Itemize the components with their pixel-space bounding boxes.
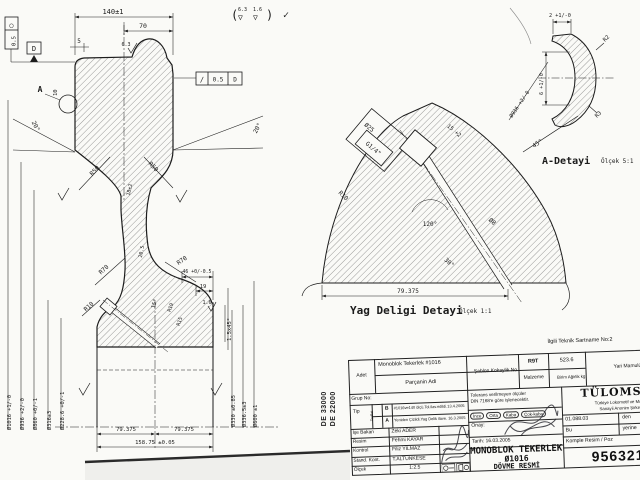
- side-code-1: DE 33000: [321, 391, 330, 426]
- a-scale: Ölçek 5:1: [601, 158, 634, 165]
- oil-angle120: 120°: [423, 221, 437, 228]
- a-dim-2: 2 +1/-0: [549, 13, 571, 19]
- role-1: İşe Bakan: [352, 430, 374, 436]
- malzeme-value: R9T: [518, 353, 549, 370]
- class-ince: İnce: [470, 412, 485, 420]
- a-caption: A-Detayi: [542, 155, 590, 167]
- wheel-cross-section: [55, 22, 278, 448]
- dim-70: 70: [139, 22, 147, 30]
- angle-left: 20°: [30, 120, 41, 133]
- tadilat-label: Tadilat: [370, 411, 374, 422]
- frame-symbol: ∕: [200, 76, 204, 84]
- oil-scale: Ölçek 1:1: [459, 308, 492, 315]
- tip-label: Tip: [353, 410, 360, 416]
- dia-600: Ø600 ±1: [252, 405, 259, 427]
- note-f2-flag-icon: ▽: [253, 13, 258, 22]
- approval-scribble: [500, 403, 563, 443]
- sheet-edge: [85, 451, 350, 480]
- detail-a-letter: A: [38, 85, 43, 94]
- projection-symbol-icon: [442, 463, 470, 473]
- chamfer: 1.5x45°: [227, 318, 233, 341]
- a-dim-6: 6 +1/-0: [539, 73, 545, 95]
- onay-label: Onay:: [471, 423, 485, 429]
- angle-right: 20°: [252, 122, 263, 135]
- wheel-section-path: [75, 39, 213, 347]
- role-2: Resim: [353, 439, 367, 445]
- title-block: İlgili Teknik Sartname No:2 Adet Monoblo…: [348, 348, 640, 476]
- name-1: Zeki ADER: [391, 429, 416, 436]
- detail-a-callout: A: [38, 85, 77, 113]
- signature-scribble: [436, 422, 472, 469]
- rev-a-letter: A: [382, 415, 392, 427]
- note-f1-flag-icon: ▽: [238, 13, 243, 22]
- finish-top: 6.3: [121, 42, 130, 48]
- dim-10: 10: [53, 89, 59, 96]
- a-detail-view: 2 +1/-0 R2 6 +1/-0 Ø936 +2/-0 R3 45° A-D…: [508, 8, 634, 167]
- dim-46: 46 +0/-0.5: [183, 269, 212, 275]
- note-close: ): [266, 8, 273, 22]
- scale-value: 1:2.5: [390, 463, 440, 475]
- role-3: Kontrol: [353, 448, 368, 454]
- r70-right: R70: [176, 255, 189, 267]
- drawing-sheet: D ○ 0.5 ∕ 0.5 D A 140±1 70 5 6.3 10: [0, 0, 640, 480]
- birim-value: 523.6: [548, 352, 586, 369]
- runout-value: 0.5: [12, 36, 18, 46]
- dia-936: Ø936 +2/-0: [19, 398, 26, 430]
- oil-caption: Yag Deligi Detayi: [350, 304, 463, 317]
- part-name-label: Parçanin Adi: [375, 372, 468, 393]
- yerine-label: yerine: [622, 426, 636, 432]
- dia-1016: Ø1016 +1/-0: [6, 395, 13, 430]
- dia-330: Ø330 ±0.85: [230, 395, 237, 427]
- frame-datum: D: [233, 77, 237, 84]
- name-2: Fehmi KAYAR: [392, 437, 424, 444]
- dim-140: 140±1: [102, 8, 123, 16]
- oil-hole-detail: Ø25 G1/4" R10 15 +2 120° Ø8 30° 79.375 Y…: [302, 103, 569, 317]
- grup-label: Grup No:: [351, 396, 371, 402]
- a-r2: R2: [602, 34, 611, 43]
- code-value: 01.088.03: [565, 417, 588, 424]
- dim-19: 19: [200, 284, 207, 290]
- runout-frame-left: ○ 0.5: [5, 17, 18, 49]
- drawing-number: 9563216: [563, 443, 640, 468]
- datum-d-flag: D: [27, 42, 41, 62]
- scale-label: Ölçek: [354, 467, 366, 473]
- den-label: den: [622, 415, 631, 421]
- sablon-label: Şablon Kokaylik No: [466, 354, 525, 390]
- a-dia: Ø936 +2/-0: [508, 89, 531, 119]
- class-orta: Orta: [486, 412, 501, 420]
- dia-3365: Ø336.5±3: [241, 401, 248, 427]
- dia-860: Ø860 +0/-1: [32, 398, 39, 430]
- sheet-side-code: DE 33000 DE 22000: [321, 391, 339, 426]
- name-4: T.ALTUNKESE: [392, 456, 425, 463]
- bu-label: Bu: [566, 428, 573, 434]
- dim-158: 158.75 ±0.05: [135, 440, 175, 446]
- rev-b-letter: B: [382, 404, 392, 416]
- dia-2286: Ø228.6 +0/-1: [59, 392, 66, 430]
- frame-value: 0.5: [213, 77, 224, 84]
- a-detail-section: [552, 34, 596, 127]
- dim-5: 5: [77, 38, 81, 45]
- runout-frame-right: ∕ 0.5 D: [174, 72, 242, 85]
- runout-symbol: ○: [9, 22, 13, 30]
- name-3: Filiz YILMAZ: [392, 447, 420, 454]
- dia-316: Ø316±3: [46, 411, 53, 430]
- datum-d-label: D: [32, 45, 36, 53]
- side-code-2: DE 22000: [330, 391, 339, 426]
- yari-label: Yari Mamulün Tasnif No: [585, 348, 640, 386]
- dim-79-right: 79.375: [174, 427, 194, 433]
- role-4: Stand. Kont.: [353, 458, 380, 464]
- r10: R10: [83, 300, 96, 313]
- finish-16: 1.6: [202, 300, 211, 306]
- adet-label: Adet: [348, 359, 375, 394]
- malzeme-label: Malzeme: [518, 369, 549, 388]
- oil-width: 79.375: [397, 288, 419, 295]
- note-check-icon: ✓: [283, 10, 289, 21]
- general-finish-note: ( 6.3 ▽ 1.6 ▽ ) ✓: [231, 7, 289, 22]
- dim-79-left: 79.375: [116, 427, 136, 433]
- r70-left: R70: [98, 263, 111, 276]
